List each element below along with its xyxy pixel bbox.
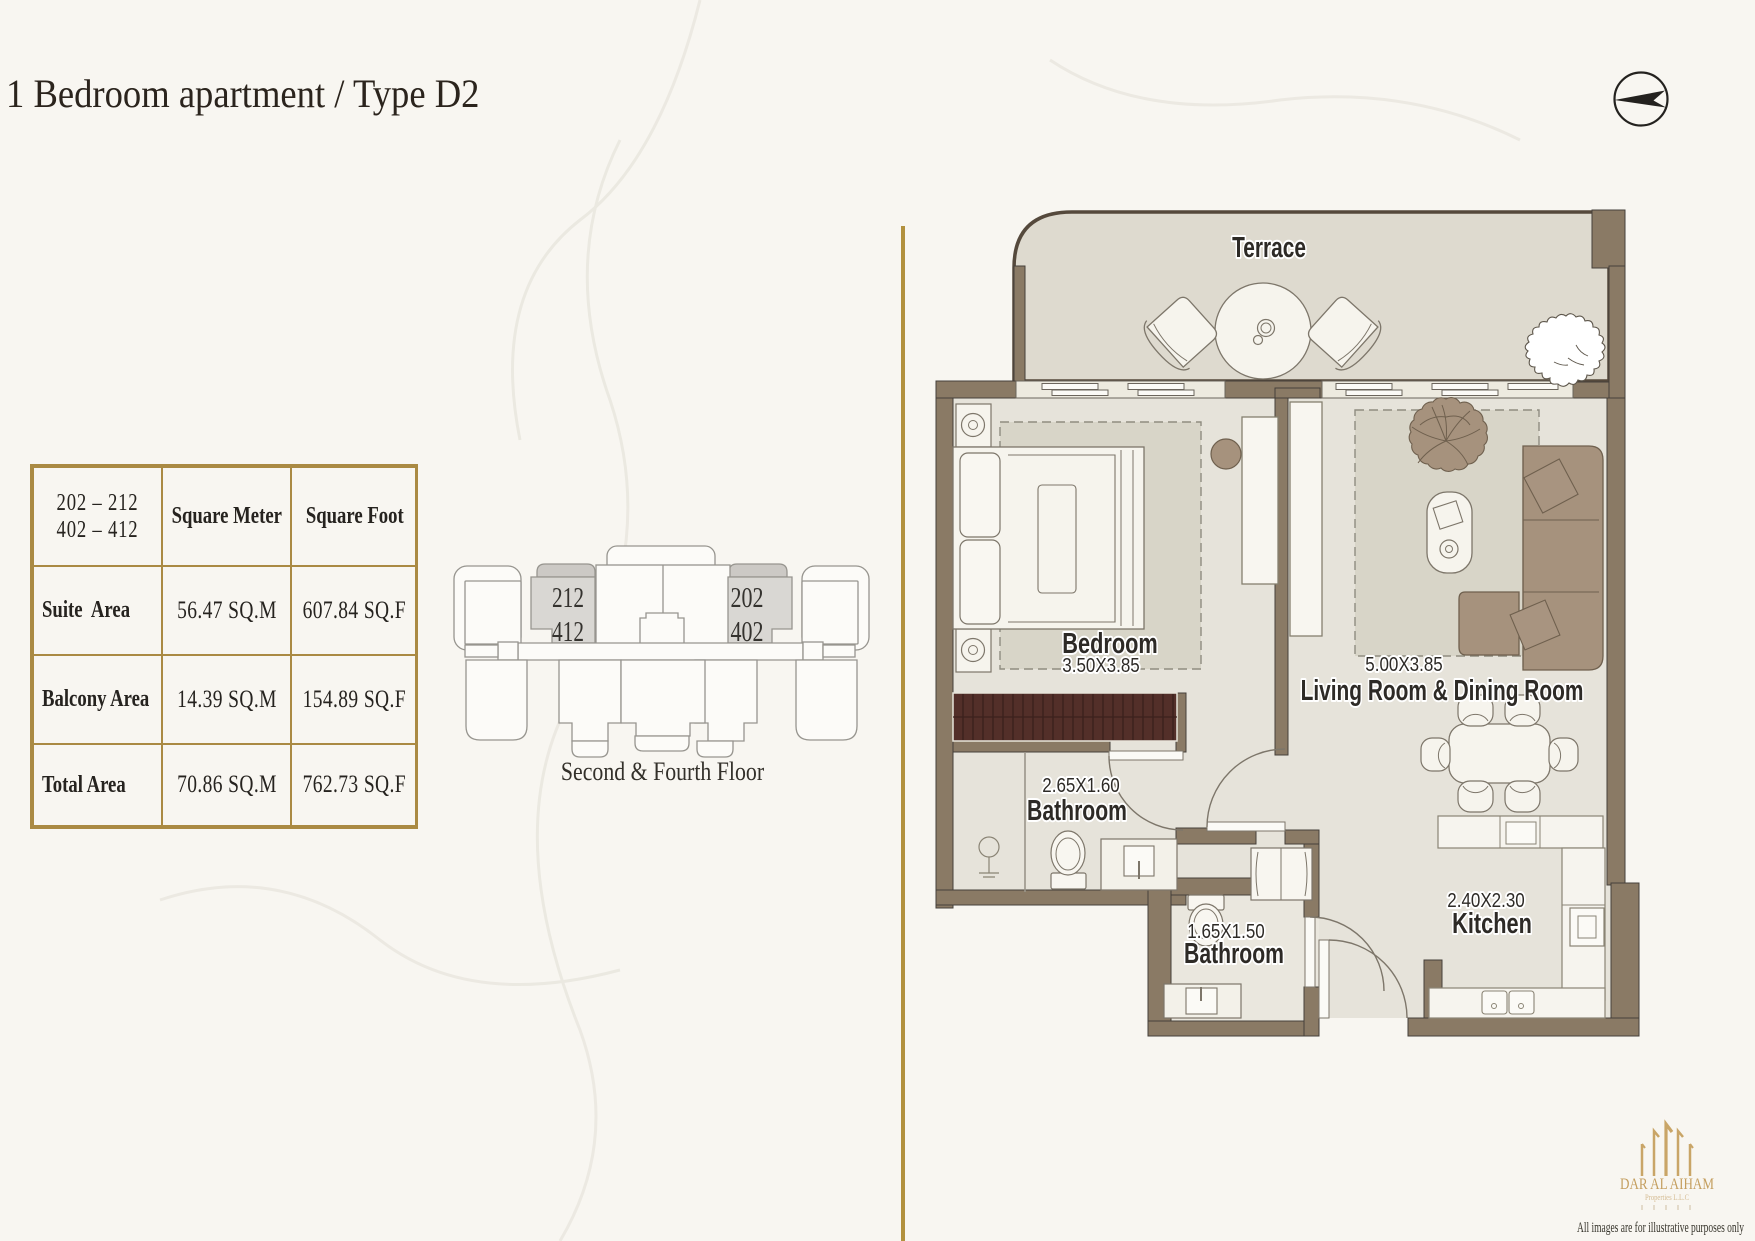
svg-text:Bathroom: Bathroom (1184, 938, 1284, 970)
svg-text:Terrace: Terrace (1232, 232, 1306, 264)
svg-text:Bathroom: Bathroom (1027, 795, 1127, 827)
svg-text:Kitchen: Kitchen (1452, 908, 1532, 940)
svg-text:Properties L.L.C: Properties L.L.C (1645, 1192, 1689, 1202)
svg-text:All images are for illustrativ: All images are for illustrative purposes… (1577, 1220, 1744, 1236)
svg-text:212: 212 (552, 583, 584, 614)
svg-text:3.50X3.85: 3.50X3.85 (1062, 654, 1139, 677)
svg-text:Living Room & Dining Room: Living Room & Dining Room (1301, 675, 1584, 707)
svg-text:202: 202 (731, 583, 764, 614)
svg-text:412: 412 (552, 617, 584, 648)
svg-text:5.00X3.85: 5.00X3.85 (1365, 653, 1442, 676)
svg-text:402: 402 (731, 617, 764, 648)
svg-text:2.65X1.60: 2.65X1.60 (1042, 774, 1119, 797)
svg-text:DAR AL AIHAM: DAR AL AIHAM (1620, 1176, 1714, 1193)
